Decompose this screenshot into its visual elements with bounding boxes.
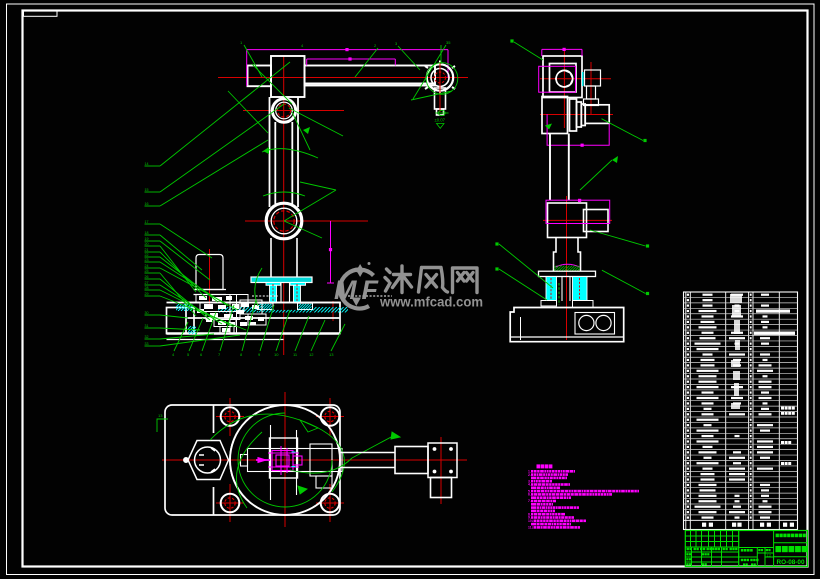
svg-text:4.: 4. xyxy=(528,483,531,487)
svg-text:18: 18 xyxy=(145,231,149,235)
svg-text:27: 27 xyxy=(145,281,149,285)
svg-text:21: 21 xyxy=(145,248,149,252)
svg-text:25: 25 xyxy=(145,269,149,273)
svg-text:15: 15 xyxy=(145,188,149,192)
svg-text:6.: 6. xyxy=(528,493,531,497)
svg-text:26: 26 xyxy=(145,275,149,279)
svg-text:www.mfcad.com: www.mfcad.com xyxy=(379,295,483,310)
svg-text:33: 33 xyxy=(145,342,149,346)
svg-text:RO-08-00: RO-08-00 xyxy=(777,560,806,566)
svg-text:22: 22 xyxy=(145,253,149,257)
svg-text:35: 35 xyxy=(446,40,451,45)
svg-text:7.: 7. xyxy=(528,499,531,503)
svg-text:10: 10 xyxy=(274,352,279,357)
svg-text:30: 30 xyxy=(145,311,149,315)
svg-text:17: 17 xyxy=(145,220,149,224)
svg-text:12: 12 xyxy=(309,352,314,357)
svg-text:28: 28 xyxy=(145,286,149,290)
svg-text:20: 20 xyxy=(145,242,149,246)
svg-text:19: 19 xyxy=(145,237,149,241)
svg-text:11.: 11. xyxy=(528,526,533,530)
svg-text:29: 29 xyxy=(145,292,149,296)
svg-text:31: 31 xyxy=(145,324,149,328)
svg-text:1:2: 1:2 xyxy=(767,554,772,558)
svg-text:2.: 2. xyxy=(528,473,531,477)
svg-text:±0.07: ±0.07 xyxy=(435,118,446,123)
svg-text:10.: 10. xyxy=(528,519,533,523)
svg-text:13: 13 xyxy=(158,413,163,418)
svg-text:13: 13 xyxy=(329,352,334,357)
svg-text:16: 16 xyxy=(145,202,149,206)
svg-text:24: 24 xyxy=(145,264,149,268)
svg-text:23: 23 xyxy=(145,258,149,262)
svg-text:14: 14 xyxy=(145,162,149,166)
svg-text:32: 32 xyxy=(145,335,149,339)
